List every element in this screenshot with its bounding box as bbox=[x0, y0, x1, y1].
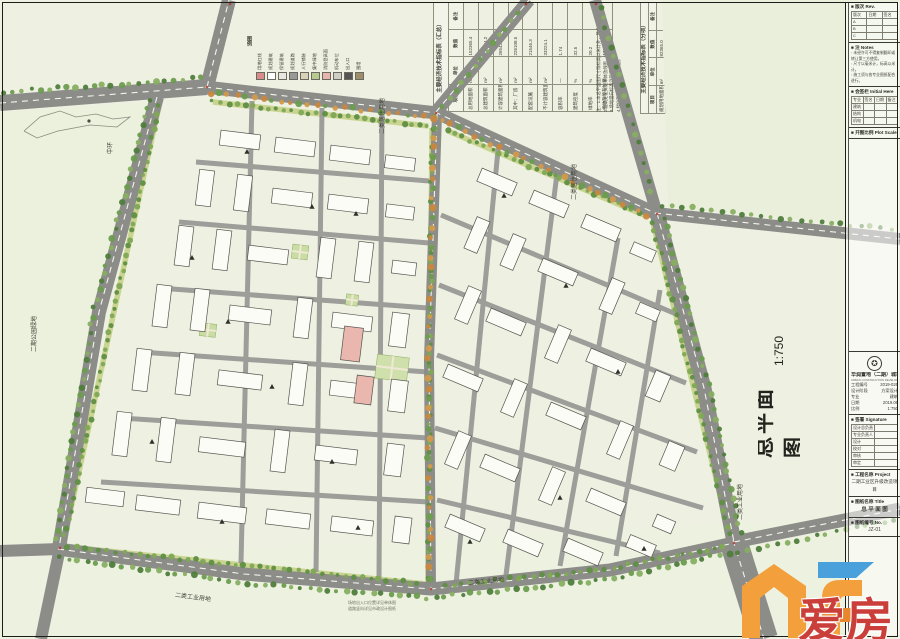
land-use-label: 二类工业用地 bbox=[736, 440, 747, 520]
project-name: 二期工业区升级改造项目 bbox=[851, 478, 898, 494]
drawing-sheet: 主要经济技术指标表（汇总）项目单位数值备注总用地面积m²152365.4总建筑面… bbox=[0, 0, 900, 639]
land-use-label: 二类居住用地 bbox=[570, 120, 581, 200]
legend-item-label: 用地红线 bbox=[255, 26, 264, 70]
legend-item-label: 围墙 bbox=[354, 26, 363, 70]
sheet-title-text: 总平面图 bbox=[758, 372, 800, 458]
legend-item: 围墙 bbox=[354, 26, 363, 80]
project-section: 工程名称 Project二期工业区升级改造项目 bbox=[849, 470, 900, 497]
legend-item-label: 保留建筑 bbox=[277, 26, 286, 70]
drawing-name: 总 平 面 图 bbox=[851, 505, 898, 515]
legend-item-label: 机动车位 bbox=[332, 26, 341, 70]
company-section: ✪华润置地（二期）城市建设有限公司URBAN CONSTRUCTION DEVE… bbox=[849, 352, 900, 415]
legend-swatch bbox=[333, 72, 342, 80]
signature-table: 设计总负责专业负责人设计校对审核审定 bbox=[851, 424, 898, 467]
land-use-label: 中环 bbox=[106, 74, 117, 154]
section-title: 会签栏 Initial Here bbox=[851, 89, 898, 95]
legend-item: 集中绿地 bbox=[310, 26, 319, 80]
title-block-section: 版次 Rev.版次日期签名ABC bbox=[849, 2, 900, 43]
land-use-label: 二类工业用地 bbox=[175, 590, 212, 603]
mini-notes: 场地出入口位置详见单体图道路竖向详见市政设计图纸 bbox=[348, 600, 396, 611]
legend-item-label: 人行铺装 bbox=[299, 26, 308, 70]
legend-item-label: 消防登高面 bbox=[321, 26, 330, 70]
legend-title: 图例 bbox=[246, 36, 253, 80]
legend-item-label: 规划建筑 bbox=[266, 26, 275, 70]
drawing-no-section: 图纸编号 No.JZ-01 bbox=[849, 518, 900, 537]
title-block-body: 版次 Rev.版次日期签名ABC注 Notes◦ 未经许可不得复制翻印或转让第三… bbox=[848, 2, 900, 635]
mini-note-line: 场地出入口位置详见单体图 bbox=[348, 600, 396, 606]
land-use-label: 二类工业用地 bbox=[468, 574, 505, 587]
legend-item-label: 集中绿地 bbox=[310, 26, 319, 70]
legend-item: 出入口 bbox=[343, 26, 352, 80]
legend-item-label: 出入口 bbox=[343, 26, 352, 70]
aifang-watermark: 爱房 bbox=[722, 556, 900, 639]
legend-swatch bbox=[289, 72, 298, 80]
sheet-title-scale: 1:750 bbox=[772, 336, 786, 366]
legend-swatch bbox=[322, 72, 331, 80]
legend-swatch bbox=[267, 72, 276, 80]
signature-section: 签署 Signature设计总负责专业负责人设计校对审核审定 bbox=[849, 415, 900, 470]
title-block: 版次 Rev.版次日期签名ABC注 Notes◦ 未经许可不得复制翻印或转让第三… bbox=[845, 2, 899, 635]
legend-item: 机动车位 bbox=[332, 26, 341, 80]
drawing-name-section: 图纸名称 Title总 平 面 图 bbox=[849, 497, 900, 518]
legend: 图例用地红线规划建筑保留建筑规划道路人行铺装集中绿地消防登高面机动车位出入口围墙 bbox=[246, 26, 363, 80]
legend-swatch bbox=[300, 72, 309, 80]
legend-swatch bbox=[344, 72, 353, 80]
land-use-label: 二期公园绿地 bbox=[30, 272, 41, 352]
logo-flag-icon bbox=[818, 562, 874, 578]
logo-h-icon bbox=[742, 564, 806, 638]
legend-item-label: 规划道路 bbox=[288, 26, 297, 70]
section-title: 版次 Rev. bbox=[851, 4, 898, 10]
mini-note-line: 道路竖向详见市政设计图纸 bbox=[348, 606, 396, 612]
legend-item: 规划道路 bbox=[288, 26, 297, 80]
legend-item: 规划建筑 bbox=[266, 26, 275, 80]
title-block-spacer bbox=[849, 139, 900, 352]
legend-swatch bbox=[256, 72, 265, 80]
title-block-section: 注 Notes◦ 未经许可不得复制翻印或转让第三方使用。◦ 尺寸以毫米计，标高以… bbox=[849, 43, 900, 87]
section-note: ◦ 未经许可不得复制翻印或转让第三方使用。 bbox=[851, 51, 898, 62]
section-table: 专业签名日期备注建筑结构机电 bbox=[851, 96, 898, 125]
section-note: ◦ 施工须与各专业图纸配合进行。 bbox=[851, 73, 898, 84]
section-title: 开图比例 Plot Scale bbox=[851, 130, 898, 136]
annotations-layer: 图例用地红线规划建筑保留建筑规划道路人行铺装集中绿地消防登高面机动车位出入口围墙… bbox=[0, 0, 900, 639]
section-title: 签署 Signature bbox=[851, 417, 898, 423]
sheet-title: 总平面图 1:750 bbox=[758, 336, 800, 458]
legend-item: 保留建筑 bbox=[277, 26, 286, 80]
land-use-label: 二类居住用地 bbox=[378, 54, 389, 134]
company-seal-icon: ✪ bbox=[867, 356, 882, 371]
legend-swatch bbox=[355, 72, 364, 80]
legend-item: 用地红线 bbox=[255, 26, 264, 80]
aifang-text: 爱房 bbox=[798, 582, 894, 639]
section-note: ◦ 尺寸以毫米计，标高以米计。 bbox=[851, 62, 898, 73]
legend-swatch bbox=[278, 72, 287, 80]
legend-swatch bbox=[311, 72, 320, 80]
drawing-no: JZ-01 bbox=[851, 526, 898, 534]
title-block-section: 开图比例 Plot Scale bbox=[849, 128, 900, 139]
meta-row: 比例1:750 bbox=[851, 406, 898, 412]
legend-item: 人行铺装 bbox=[299, 26, 308, 80]
legend-item: 消防登高面 bbox=[321, 26, 330, 80]
title-block-section: 会签栏 Initial Here专业签名日期备注建筑结构机电 bbox=[849, 87, 900, 128]
section-table: 版次日期签名ABC bbox=[851, 11, 898, 40]
